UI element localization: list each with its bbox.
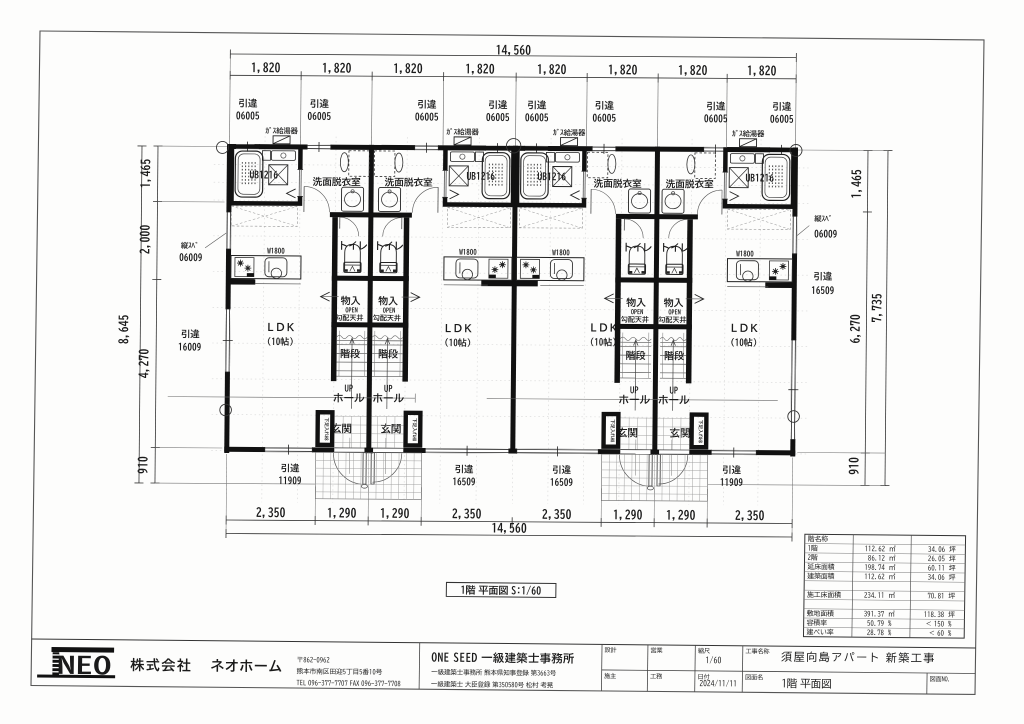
svg-text:物入: 物入 — [626, 297, 646, 308]
svg-text:下足入れH8: 下足入れH8 — [698, 420, 703, 443]
svg-text:㎡: ㎡ — [889, 555, 897, 562]
svg-text:引違: 引違 — [814, 271, 833, 282]
svg-text:ｶﾞｽ給湯器: ｶﾞｽ給湯器 — [732, 129, 765, 138]
svg-text:トイレ: トイレ — [338, 241, 368, 251]
svg-text:坪: 坪 — [947, 611, 955, 618]
svg-text:ＬＤＫ: ＬＤＫ — [588, 323, 618, 333]
svg-text:坪: 坪 — [948, 555, 956, 562]
svg-text:1,465: 1,465 — [850, 169, 863, 199]
svg-text:14,560: 14,560 — [491, 521, 527, 534]
svg-text:234.11: 234.11 — [864, 592, 884, 599]
svg-text:一級建築士事務所 熊本県知事登録 第3663号: 一級建築士事務所 熊本県知事登録 第3663号 — [431, 668, 557, 677]
svg-text:〒862-0962: 〒862-0962 — [297, 656, 330, 663]
svg-text:1,820: 1,820 — [537, 64, 567, 75]
svg-text:1,820: 1,820 — [465, 64, 495, 75]
svg-text:坪: 坪 — [948, 546, 956, 553]
svg-text:198.74: 198.74 — [864, 564, 885, 571]
svg-text:16509: 16509 — [550, 476, 574, 488]
svg-text:%: % — [948, 630, 952, 637]
svg-text:図面名: 図面名 — [745, 673, 763, 680]
svg-text:1,820: 1,820 — [608, 65, 638, 76]
svg-text:洗面脱衣室: 洗面脱衣室 — [593, 178, 642, 189]
svg-text:㎡: ㎡ — [889, 545, 897, 552]
svg-text:11909: 11909 — [720, 478, 744, 488]
svg-text:UB1216: UB1216 — [537, 170, 566, 182]
svg-text:2,350: 2,350 — [542, 509, 572, 520]
svg-text:28.78: 28.78 — [867, 629, 884, 636]
svg-text:ホール: ホール — [618, 394, 650, 405]
svg-text:50.79: 50.79 — [867, 620, 884, 627]
svg-text:＜ 150: ＜ 150 — [925, 620, 944, 627]
svg-text:UB1216: UB1216 — [466, 169, 495, 181]
svg-text:W1800: W1800 — [552, 249, 570, 256]
svg-text:OPEN: OPEN — [668, 309, 680, 315]
svg-text:引違: 引違 — [772, 101, 792, 112]
svg-text:縦ｽﾍﾞ: 縦ｽﾍﾞ — [814, 214, 832, 223]
svg-text:洗面脱衣室: 洗面脱衣室 — [384, 176, 433, 187]
svg-text:06005: 06005 — [704, 112, 728, 124]
svg-text:70.81: 70.81 — [927, 592, 944, 599]
svg-text:ネオホーム: ネオホーム — [210, 659, 283, 674]
svg-text:391.37: 391.37 — [864, 610, 884, 617]
svg-text:縮尺: 縮尺 — [697, 648, 711, 654]
svg-text:06005: 06005 — [236, 109, 260, 121]
svg-text:06005: 06005 — [770, 112, 794, 124]
svg-text:トイレ: トイレ — [660, 243, 690, 253]
svg-text:㎡: ㎡ — [888, 610, 896, 617]
svg-text:延床面積: 延床面積 — [806, 563, 834, 571]
svg-text:下足入れH8: 下足入れH8 — [412, 418, 417, 441]
svg-text:UP: UP — [670, 386, 679, 395]
svg-text:112.62: 112.62 — [864, 573, 884, 580]
svg-text:1,290: 1,290 — [666, 510, 696, 521]
svg-text:下足入れH8: 下足入れH8 — [324, 418, 329, 441]
svg-text:2024/11/11: 2024/11/11 — [698, 679, 737, 687]
svg-text:1,290: 1,290 — [380, 508, 410, 519]
svg-text:坪: 坪 — [947, 592, 955, 599]
svg-text:階名称: 階名称 — [808, 534, 829, 542]
svg-text:ONE SEED 一級建築士事務所: ONE SEED 一級建築士事務所 — [431, 651, 575, 664]
svg-text:1,820: 1,820 — [678, 65, 708, 76]
svg-text:11909: 11909 — [278, 476, 302, 486]
svg-text:4,270: 4,270 — [139, 349, 150, 379]
svg-text:2,000: 2,000 — [140, 225, 151, 255]
svg-text:階段: 階段 — [378, 348, 398, 359]
svg-text:階段: 階段 — [664, 350, 684, 361]
svg-text:910: 910 — [138, 456, 149, 474]
svg-text:敷地面積: 敷地面積 — [807, 609, 835, 618]
svg-text:1,465: 1,465 — [139, 159, 152, 189]
svg-text:1,820: 1,820 — [322, 63, 352, 74]
svg-text:引違: 引違 — [527, 99, 547, 110]
svg-text:06009: 06009 — [179, 251, 203, 263]
svg-text:OPEN: OPEN — [383, 307, 395, 313]
svg-text:階段: 階段 — [340, 348, 360, 359]
svg-text:熊本市南区田迎5丁目5番10号: 熊本市南区田迎5丁目5番10号 — [295, 667, 382, 677]
svg-text:%: % — [948, 620, 952, 627]
svg-text:TEL 096-377-7707 FAX 096-377-: TEL 096-377-7707 FAX 096-377-7708 — [296, 679, 400, 687]
svg-text:6,270: 6,270 — [848, 314, 861, 344]
svg-text:㎡: ㎡ — [889, 573, 897, 580]
svg-text:坪: 坪 — [948, 574, 956, 581]
svg-text:引違: 引違 — [595, 100, 615, 111]
svg-text:建ぺい率: 建ぺい率 — [806, 628, 833, 636]
svg-text:引違: 引違 — [455, 463, 474, 474]
svg-text:引違: 引違 — [706, 100, 726, 111]
svg-text:60.11: 60.11 — [928, 564, 945, 571]
svg-text:坪: 坪 — [948, 564, 956, 571]
svg-text:1階 平面図 S:1/60: 1階 平面図 S:1/60 — [461, 584, 542, 597]
svg-text:OPEN: OPEN — [631, 309, 643, 315]
svg-text:（10帖）: （10帖） — [726, 338, 762, 348]
svg-text:1,820: 1,820 — [747, 66, 777, 77]
svg-text:34.06: 34.06 — [928, 546, 945, 553]
svg-text:引違: 引違 — [281, 462, 300, 473]
svg-text:（10帖）: （10帖） — [262, 337, 298, 347]
svg-text:引違: 引違 — [417, 99, 437, 110]
svg-text:一級建築士 大臣登録 第350580号 松村 考晃: 一級建築士 大臣登録 第350580号 松村 考晃 — [431, 680, 554, 689]
svg-text:須屋向島アパート 新築工事: 須屋向島アパート 新築工事 — [781, 651, 936, 664]
svg-text:引違: 引違 — [238, 98, 258, 109]
svg-text:物入: 物入 — [664, 297, 684, 308]
svg-text:2階: 2階 — [808, 553, 819, 561]
svg-text:洗面脱衣室: 洗面脱衣室 — [312, 176, 361, 187]
svg-text:26.05: 26.05 — [928, 555, 945, 562]
svg-text:1,290: 1,290 — [327, 508, 357, 519]
svg-text:＜ 60: ＜ 60 — [928, 629, 944, 636]
svg-text:06005: 06005 — [486, 111, 510, 123]
svg-text:勾配天井: 勾配天井 — [621, 315, 649, 324]
svg-text:1,820: 1,820 — [393, 64, 423, 75]
svg-text:勾配天井: 勾配天井 — [373, 313, 401, 322]
svg-text:（10帖）: （10帖） — [440, 338, 476, 348]
svg-text:1階: 1階 — [808, 543, 819, 551]
svg-text:8,645: 8,645 — [117, 314, 130, 344]
svg-text:引違: 引違 — [488, 99, 508, 110]
svg-text:勾配天井: 勾配天井 — [335, 313, 363, 322]
svg-text:ＬＤＫ: ＬＤＫ — [265, 323, 295, 333]
svg-text:UP: UP — [384, 384, 393, 393]
svg-text:トイレ: トイレ — [623, 243, 653, 253]
svg-text:1/60: 1/60 — [705, 655, 721, 664]
svg-text:物入: 物入 — [378, 295, 398, 306]
svg-text:1,290: 1,290 — [613, 510, 643, 521]
svg-text:34.06: 34.06 — [928, 574, 945, 581]
svg-text:16509: 16509 — [452, 475, 476, 487]
svg-text:勾配天井: 勾配天井 — [658, 315, 686, 324]
svg-text:洗面脱衣室: 洗面脱衣室 — [665, 178, 714, 189]
svg-text:910: 910 — [849, 457, 860, 475]
svg-text:㎡: ㎡ — [888, 592, 896, 599]
svg-text:14,560: 14,560 — [496, 43, 532, 56]
svg-text:引違: 引違 — [310, 98, 330, 109]
svg-text:W1800: W1800 — [736, 250, 754, 257]
svg-text:06005: 06005 — [592, 111, 616, 123]
svg-text:UP: UP — [630, 386, 639, 395]
svg-text:縦ｽﾍﾞ: 縦ｽﾍﾞ — [181, 241, 199, 250]
svg-text:ｶﾞｽ給湯器: ｶﾞｽ給湯器 — [265, 126, 298, 135]
svg-text:玄関: 玄関 — [669, 428, 690, 439]
svg-text:UB1216: UB1216 — [745, 171, 774, 183]
svg-text:工務: 工務 — [650, 672, 663, 679]
svg-text:1階 平面図: 1階 平面図 — [781, 677, 831, 689]
svg-text:UP: UP — [345, 384, 354, 393]
svg-text:2,350: 2,350 — [735, 511, 765, 522]
svg-text:W1800: W1800 — [459, 248, 477, 255]
svg-text:7,735: 7,735 — [872, 293, 883, 323]
svg-text:ＬＤＫ: ＬＤＫ — [729, 324, 759, 334]
svg-text:ホール: ホール — [658, 395, 690, 406]
svg-text:%: % — [888, 629, 892, 636]
svg-text:ホール: ホール — [333, 393, 365, 404]
svg-text:引違: 引違 — [722, 464, 741, 475]
svg-text:16009: 16009 — [178, 340, 202, 352]
svg-text:2,350: 2,350 — [256, 508, 286, 519]
svg-text:ｶﾞｽ給湯器: ｶﾞｽ給湯器 — [446, 127, 479, 136]
svg-text:OPEN: OPEN — [345, 307, 357, 313]
svg-text:容積率: 容積率 — [806, 619, 828, 627]
svg-text:06009: 06009 — [814, 227, 838, 239]
svg-text:引違: 引違 — [181, 328, 200, 339]
svg-text:営業: 営業 — [651, 646, 663, 653]
svg-text:112.62: 112.62 — [865, 545, 885, 552]
svg-text:建築面積: 建築面積 — [807, 572, 834, 580]
svg-text:06005: 06005 — [525, 111, 549, 123]
svg-text:下足入れH8: 下足入れH8 — [610, 419, 615, 442]
svg-text:施工床面積: 施工床面積 — [807, 590, 841, 599]
svg-text:06005: 06005 — [307, 109, 331, 121]
svg-text:NEO: NEO — [57, 653, 111, 677]
svg-text:図面NO.: 図面NO. — [930, 676, 951, 682]
svg-text:㎡: ㎡ — [889, 564, 897, 571]
svg-text:工事名称: 工事名称 — [746, 647, 770, 654]
svg-text:ホール: ホール — [372, 393, 404, 404]
svg-text:ＬＤＫ: ＬＤＫ — [443, 324, 473, 334]
svg-text:物入: 物入 — [341, 295, 361, 306]
svg-text:86.12: 86.12 — [868, 554, 885, 561]
svg-text:株式会社: 株式会社 — [130, 658, 192, 673]
svg-text:%: % — [888, 620, 892, 627]
svg-text:2,350: 2,350 — [452, 509, 482, 520]
svg-text:階段: 階段 — [626, 350, 646, 361]
svg-text:W1800: W1800 — [267, 247, 285, 254]
svg-text:ｶﾞｽ給湯器: ｶﾞｽ給湯器 — [553, 128, 586, 137]
svg-text:施主: 施主 — [603, 672, 616, 679]
svg-text:引違: 引違 — [552, 464, 571, 475]
svg-text:1,820: 1,820 — [251, 63, 281, 74]
svg-text:設計: 設計 — [605, 647, 618, 653]
svg-text:06005: 06005 — [415, 110, 439, 122]
svg-text:118.38: 118.38 — [924, 611, 944, 618]
svg-text:トイレ: トイレ — [374, 241, 404, 251]
svg-text:16509: 16509 — [811, 284, 835, 296]
